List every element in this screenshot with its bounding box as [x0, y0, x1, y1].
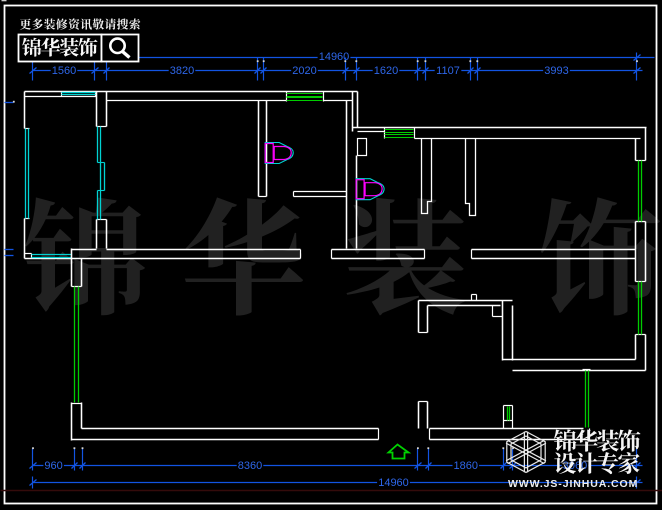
svg-text:2020: 2020	[292, 65, 316, 77]
svg-text:1560: 1560	[52, 65, 76, 77]
svg-text:960: 960	[44, 460, 62, 472]
svg-text:8360: 8360	[238, 460, 262, 472]
svg-text:3820: 3820	[170, 65, 194, 77]
svg-text:1860: 1860	[454, 460, 478, 472]
svg-text:1107: 1107	[436, 65, 460, 77]
svg-text:1620: 1620	[374, 65, 398, 77]
svg-text:3993: 3993	[544, 65, 568, 77]
svg-text:14960: 14960	[378, 477, 409, 489]
svg-text:WWW.JS-JINHUA.COM: WWW.JS-JINHUA.COM	[508, 478, 638, 490]
